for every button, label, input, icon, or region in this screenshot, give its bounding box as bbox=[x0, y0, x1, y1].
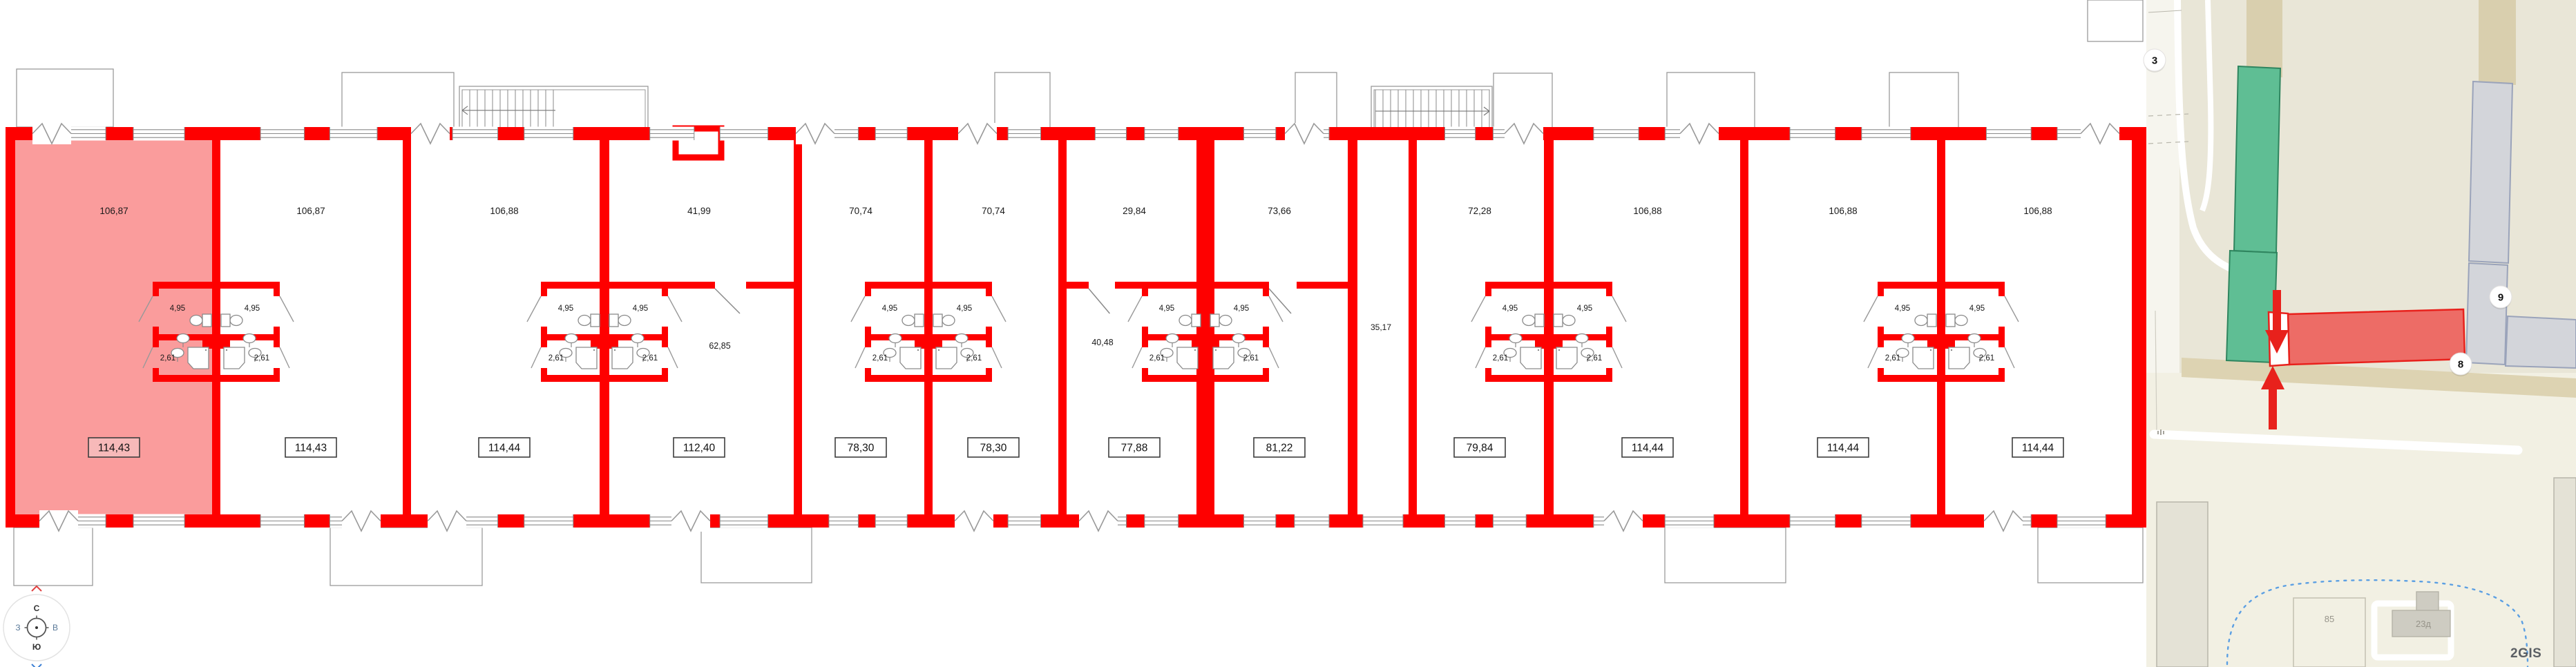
unit-area-label: 29,84 bbox=[1123, 206, 1146, 216]
unit-total-badge[interactable]: 77,88 bbox=[1109, 438, 1160, 457]
san-room-area: 4,95 bbox=[1969, 304, 1985, 313]
san-room-area: 2,61 bbox=[1243, 354, 1259, 362]
san-room-area: 4,95 bbox=[245, 304, 260, 313]
unit-total-badge[interactable]: 112,40 bbox=[674, 438, 725, 457]
svg-text:3: 3 bbox=[2152, 55, 2157, 67]
unit-total-label: 81,22 bbox=[1266, 443, 1293, 454]
san-room-area: 4,95 bbox=[1234, 304, 1249, 313]
unit-total-label: 77,88 bbox=[1121, 443, 1148, 454]
unit-11[interactable] bbox=[1748, 140, 1937, 514]
map-marker-3[interactable]: 3 bbox=[2144, 49, 2166, 72]
san-room-area: 2,61 bbox=[872, 354, 888, 362]
unit-total-label: 112,40 bbox=[683, 443, 716, 454]
map-building-label: 23д bbox=[2416, 619, 2431, 629]
unit-total-badge[interactable]: 79,84 bbox=[1454, 438, 1505, 457]
san-room-area: 2,61 bbox=[966, 354, 982, 362]
unit-total-label: 114,44 bbox=[1827, 443, 1860, 454]
room-area-label: 40,48 bbox=[1091, 338, 1113, 347]
san-room-area: 4,95 bbox=[1895, 304, 1910, 313]
unit-area-label: 70,74 bbox=[982, 206, 1005, 216]
unit-area-label: 106,87 bbox=[296, 206, 325, 216]
unit-09[interactable] bbox=[1417, 140, 1544, 514]
unit-03[interactable] bbox=[411, 140, 600, 514]
map-marker-9[interactable]: 9 bbox=[2490, 286, 2512, 309]
svg-text:9: 9 bbox=[2498, 292, 2503, 304]
compass-south: Ю bbox=[32, 642, 41, 652]
compass-east: В bbox=[53, 623, 58, 632]
san-room-area: 4,95 bbox=[558, 304, 573, 313]
unit-total-label: 114,44 bbox=[488, 443, 521, 454]
unit-10[interactable] bbox=[1552, 140, 1740, 514]
unit-total-badge[interactable]: 81,22 bbox=[1254, 438, 1305, 457]
svg-text:8: 8 bbox=[2458, 359, 2463, 371]
san-room-area: 4,95 bbox=[170, 304, 185, 313]
san-room-area: 4,95 bbox=[1577, 304, 1592, 313]
unit-12[interactable] bbox=[1945, 140, 2132, 514]
unit-07[interactable] bbox=[1067, 140, 1196, 514]
unit-total-label: 114,43 bbox=[98, 443, 130, 454]
floorplan-screen: 4,954,952,612,614,954,952,612,614,954,95… bbox=[0, 0, 2576, 667]
san-room-area: 2,61 bbox=[642, 354, 658, 362]
unit-06[interactable] bbox=[933, 140, 1058, 514]
unit-area-label: 106,88 bbox=[1829, 206, 1857, 216]
mini-map[interactable]: 8523д398 bbox=[2144, 0, 2576, 667]
unit-01[interactable] bbox=[15, 140, 212, 514]
unit-area-label: 70,74 bbox=[849, 206, 872, 216]
map-building-selected[interactable] bbox=[2269, 309, 2465, 366]
san-room-area: 2,61 bbox=[548, 354, 564, 362]
unit-04[interactable] bbox=[609, 140, 794, 514]
unit-total-badge[interactable]: 114,44 bbox=[479, 438, 530, 457]
unit-02[interactable] bbox=[220, 140, 403, 514]
san-room-area: 2,61 bbox=[1493, 354, 1508, 362]
unit-total-badge[interactable]: 114,44 bbox=[1817, 438, 1869, 457]
unit-area-label: 72,28 bbox=[1468, 206, 1491, 216]
map-watermark-link[interactable]: 2GIS bbox=[2510, 646, 2573, 661]
room-area-label: 62,85 bbox=[709, 341, 730, 351]
san-room-area: 4,95 bbox=[957, 304, 972, 313]
unit-total-label: 114,44 bbox=[1632, 443, 1664, 454]
san-room-area: 4,95 bbox=[882, 304, 897, 313]
unit-total-badge[interactable]: 78,30 bbox=[968, 438, 1019, 457]
san-room-area: 2,61 bbox=[160, 354, 175, 362]
san-room-area: 2,61 bbox=[1885, 354, 1900, 362]
map-marker-8[interactable]: 8 bbox=[2450, 353, 2472, 376]
unit-total-label: 79,84 bbox=[1467, 443, 1494, 454]
san-room-area: 2,61 bbox=[1149, 354, 1165, 362]
unit-total-badge[interactable]: 114,43 bbox=[285, 438, 336, 457]
san-room-area: 2,61 bbox=[254, 354, 269, 362]
compass-north: С bbox=[34, 603, 40, 613]
san-room-area: 4,95 bbox=[1159, 304, 1174, 313]
unit-total-badge[interactable]: 114,43 bbox=[88, 438, 140, 457]
unit-area-label: 106,88 bbox=[1633, 206, 1661, 216]
corridor-area-label: 35,17 bbox=[1371, 322, 1391, 332]
unit-area-label: 73,66 bbox=[1268, 206, 1291, 216]
unit-total-badge[interactable]: 114,44 bbox=[1622, 438, 1673, 457]
unit-area-label: 106,87 bbox=[99, 206, 128, 216]
unit-area-label: 106,88 bbox=[490, 206, 518, 216]
unit-area-label: 41,99 bbox=[687, 206, 711, 216]
unit-total-label: 78,30 bbox=[980, 443, 1007, 454]
unit-total-label: 114,43 bbox=[295, 443, 327, 454]
unit-08[interactable] bbox=[1214, 140, 1348, 514]
san-room-area: 4,95 bbox=[633, 304, 648, 313]
san-room-area: 4,95 bbox=[1502, 304, 1518, 313]
unit-total-badge[interactable]: 78,30 bbox=[835, 438, 886, 457]
unit-total-label: 78,30 bbox=[848, 443, 875, 454]
unit-area-label: 106,88 bbox=[2023, 206, 2052, 216]
unit-total-label: 114,44 bbox=[2022, 443, 2054, 454]
unit-05[interactable] bbox=[802, 140, 924, 514]
san-room-area: 2,61 bbox=[1979, 354, 1994, 362]
map-building-label: 85 bbox=[2325, 614, 2334, 624]
unit-total-badge[interactable]: 114,44 bbox=[2012, 438, 2063, 457]
floor-plan-canvas: 4,954,952,612,614,954,952,612,614,954,95… bbox=[0, 0, 2576, 667]
compass-west: З bbox=[15, 623, 20, 632]
san-room-area: 2,61 bbox=[1587, 354, 1602, 362]
